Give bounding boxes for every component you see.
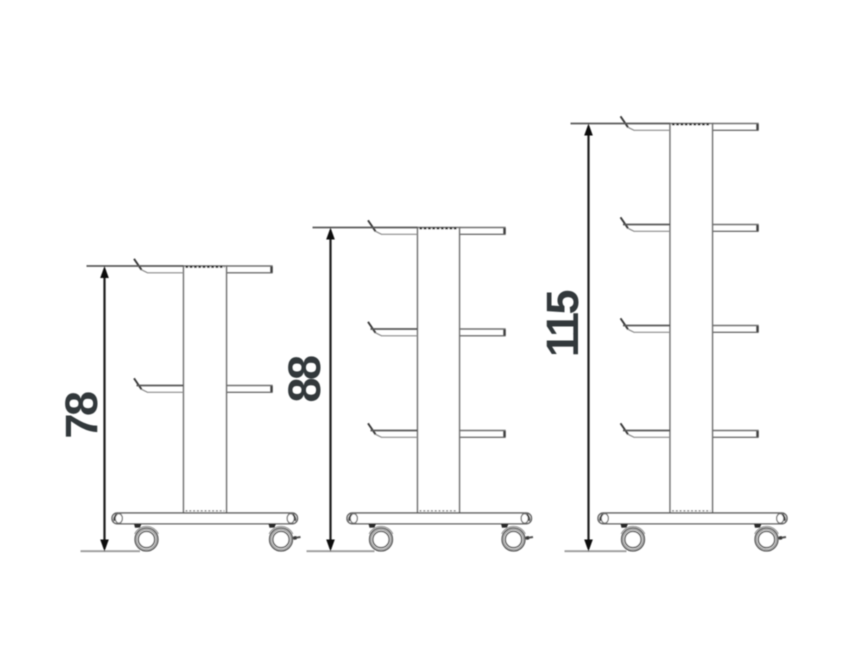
- svg-text:88: 88: [279, 356, 330, 403]
- svg-text:115: 115: [537, 290, 588, 357]
- svg-text:78: 78: [56, 392, 107, 439]
